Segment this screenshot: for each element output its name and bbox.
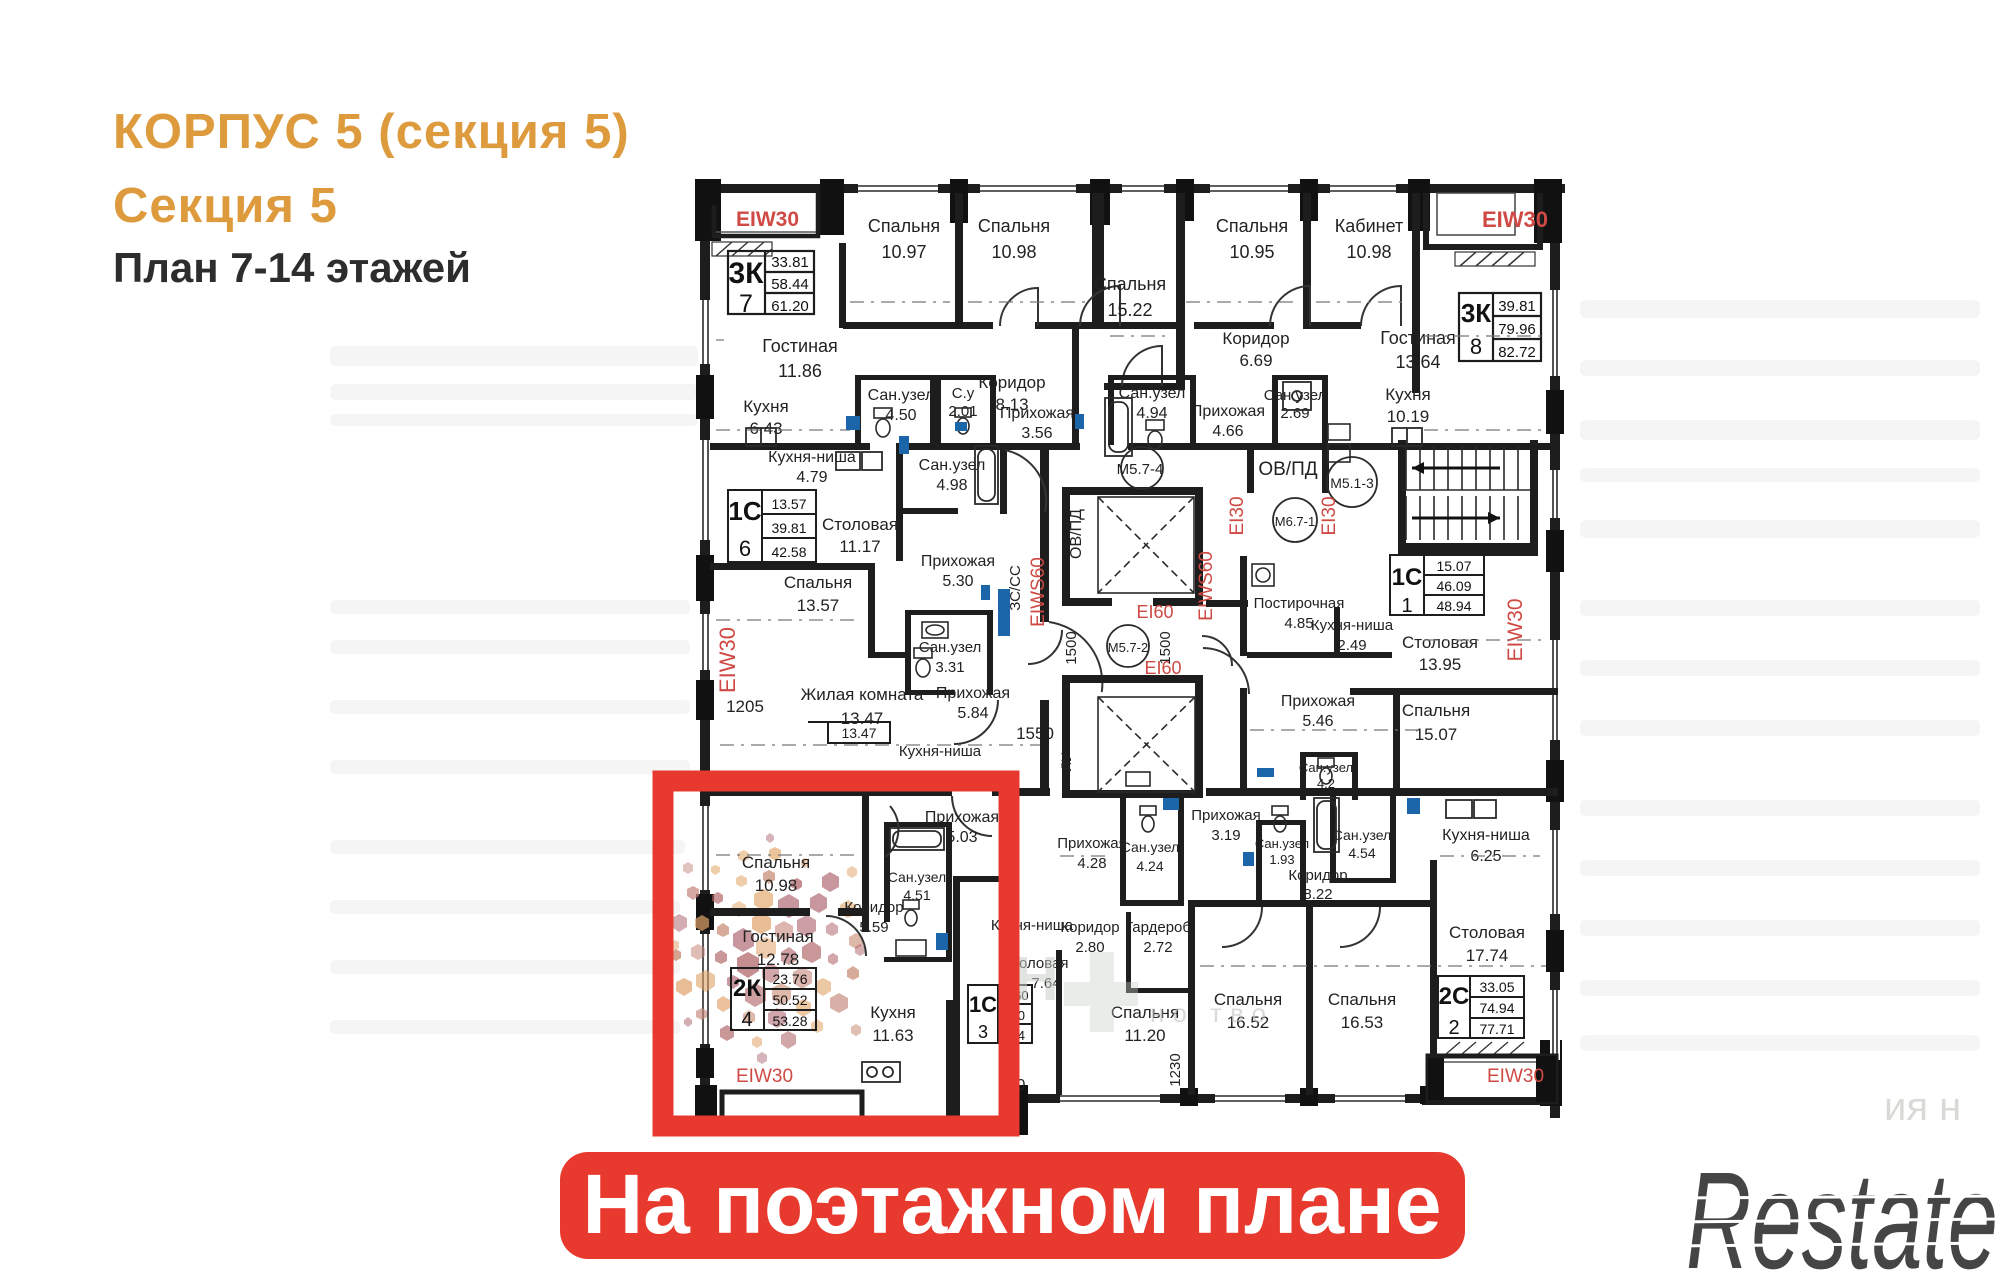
svg-text:48.94: 48.94 bbox=[1436, 598, 1471, 614]
svg-text:1С: 1С bbox=[969, 992, 997, 1017]
svg-text:10.95: 10.95 bbox=[1229, 242, 1274, 262]
svg-text:8: 8 bbox=[1470, 334, 1482, 359]
svg-text:Спальня: Спальня bbox=[1094, 274, 1166, 294]
svg-text:6: 6 bbox=[739, 536, 751, 561]
svg-text:3.19: 3.19 bbox=[1211, 827, 1240, 844]
svg-text:1С: 1С bbox=[1392, 564, 1423, 591]
svg-text:Столовая: Столовая bbox=[1449, 923, 1525, 942]
svg-text:1500: 1500 bbox=[1063, 631, 1080, 664]
svg-text:EIW30: EIW30 bbox=[1487, 1066, 1544, 1087]
svg-text:Прихожая: Прихожая bbox=[1000, 405, 1074, 422]
svg-text:EIWS60: EIWS60 bbox=[1196, 551, 1217, 621]
svg-text:6.69: 6.69 bbox=[1239, 351, 1272, 370]
svg-text:Сан.узел: Сан.узел bbox=[1333, 827, 1391, 843]
svg-text:77.71: 77.71 bbox=[1479, 1021, 1514, 1037]
svg-text:Прихожая: Прихожая bbox=[936, 685, 1010, 702]
svg-text:4.79: 4.79 bbox=[796, 469, 827, 486]
svg-text:Спальня: Спальня bbox=[1216, 216, 1288, 236]
svg-text:1230: 1230 bbox=[1167, 1053, 1184, 1086]
svg-text:Спальня: Спальня bbox=[742, 853, 810, 872]
svg-text:М5.7-4: М5.7-4 bbox=[1117, 461, 1164, 478]
svg-text:5.30: 5.30 bbox=[942, 573, 973, 590]
svg-text:7: 7 bbox=[739, 290, 753, 318]
svg-text:3.31: 3.31 bbox=[935, 659, 964, 676]
svg-text:Секция 5: Секция 5 bbox=[113, 179, 338, 233]
svg-text:46.09: 46.09 bbox=[1436, 578, 1471, 594]
svg-text:2.72: 2.72 bbox=[1143, 939, 1172, 956]
svg-text:Сан.узел: Сан.узел bbox=[1119, 385, 1186, 402]
svg-text:Спальня: Спальня bbox=[978, 216, 1050, 236]
svg-text:ОВ/ПД: ОВ/ПД bbox=[1258, 459, 1317, 480]
svg-text:Кухня: Кухня bbox=[1385, 385, 1431, 404]
svg-text:13.57: 13.57 bbox=[797, 596, 840, 615]
svg-text:10.97: 10.97 bbox=[881, 242, 926, 262]
svg-text:ЛУ: ЛУ bbox=[1058, 753, 1074, 771]
svg-text:5.46: 5.46 bbox=[1302, 713, 1333, 730]
svg-text:EIW30: EIW30 bbox=[736, 1066, 793, 1087]
svg-text:1: 1 bbox=[1401, 595, 1412, 617]
svg-text:Спальня: Спальня bbox=[1328, 990, 1396, 1009]
svg-text:1С: 1С bbox=[728, 496, 761, 526]
svg-text:Гостиная: Гостиная bbox=[762, 336, 838, 356]
svg-text:4.98: 4.98 bbox=[936, 477, 967, 494]
svg-text:План 7-14 этажей: План 7-14 этажей bbox=[113, 244, 471, 291]
svg-text:Кухня-ниша: Кухня-ниша bbox=[1442, 827, 1530, 844]
svg-text:2: 2 bbox=[1448, 1017, 1459, 1039]
svg-text:Кухня: Кухня bbox=[743, 397, 789, 416]
svg-text:4.50: 4.50 bbox=[885, 407, 916, 424]
svg-text:EIW30: EIW30 bbox=[1504, 598, 1527, 661]
svg-text:33.81: 33.81 bbox=[771, 254, 809, 271]
svg-text:Спальня: Спальня bbox=[1402, 701, 1470, 720]
svg-text:3.56: 3.56 bbox=[1021, 425, 1052, 442]
svg-text:На поэтажном плане: На поэтажном плане bbox=[582, 1157, 1441, 1251]
svg-text:11.20: 11.20 bbox=[1124, 1026, 1165, 1045]
svg-text:39.81: 39.81 bbox=[771, 520, 806, 536]
svg-text:EIWS60: EIWS60 bbox=[1028, 557, 1049, 627]
svg-text:1.93: 1.93 bbox=[1269, 852, 1294, 867]
svg-text:ЕІ30: ЕІ30 bbox=[1319, 496, 1340, 535]
svg-text:15.22: 15.22 bbox=[1107, 300, 1152, 320]
svg-text:Restate: Restate bbox=[1686, 1144, 1998, 1275]
svg-text:Жилая комната: Жилая комната bbox=[801, 685, 924, 704]
svg-text:Кухня: Кухня bbox=[870, 1003, 916, 1022]
svg-text:1500: 1500 bbox=[1157, 631, 1174, 664]
svg-text:Спальня: Спальня bbox=[784, 573, 852, 592]
svg-text:Столовая: Столовая bbox=[822, 515, 898, 534]
svg-text:Кухня-ниша: Кухня-ниша bbox=[1311, 617, 1394, 634]
svg-text:ЕІ30: ЕІ30 bbox=[1227, 496, 1248, 535]
svg-text:Гостиная: Гостиная bbox=[1380, 328, 1456, 348]
svg-text:2.69: 2.69 bbox=[1280, 405, 1309, 422]
svg-text:КОРПУС 5 (секция 5): КОРПУС 5 (секция 5) bbox=[113, 105, 630, 159]
svg-text:4: 4 bbox=[741, 1009, 752, 1031]
svg-text:74.94: 74.94 bbox=[1479, 1000, 1514, 1016]
svg-text:Прихожая: Прихожая bbox=[921, 553, 995, 570]
svg-text:16.53: 16.53 bbox=[1341, 1013, 1384, 1032]
svg-text:4.66: 4.66 bbox=[1212, 423, 1243, 440]
svg-text:61.20: 61.20 bbox=[771, 298, 809, 315]
svg-text:4.24: 4.24 bbox=[1136, 858, 1163, 874]
svg-text:Постирочная: Постирочная bbox=[1254, 595, 1345, 612]
svg-text:5.03: 5.03 bbox=[946, 829, 977, 846]
svg-text:Сан.узел: Сан.узел bbox=[1255, 836, 1309, 851]
svg-text:13.95: 13.95 bbox=[1419, 655, 1462, 674]
svg-text:3К: 3К bbox=[729, 257, 765, 290]
svg-text:но тво: но тво bbox=[1150, 998, 1274, 1028]
svg-text:Гостиная: Гостиная bbox=[742, 927, 813, 946]
svg-text:23.76: 23.76 bbox=[772, 971, 807, 987]
svg-text:М5.7-2: М5.7-2 bbox=[1108, 640, 1148, 655]
svg-text:Сан.узел: Сан.узел bbox=[1121, 839, 1179, 855]
svg-text:Прихожая: Прихожая bbox=[1191, 403, 1265, 420]
svg-text:2.49: 2.49 bbox=[1337, 637, 1366, 654]
svg-text:Спальня: Спальня bbox=[868, 216, 940, 236]
svg-text:Н: Н bbox=[1014, 945, 1059, 1014]
svg-text:4.85: 4.85 bbox=[1284, 615, 1313, 632]
svg-text:Прихожая: Прихожая bbox=[1057, 835, 1127, 852]
svg-text:С.у: С.у bbox=[952, 385, 975, 402]
svg-text:1205: 1205 bbox=[726, 697, 764, 716]
svg-text:Коридор: Коридор bbox=[1288, 867, 1347, 884]
svg-text:82.72: 82.72 bbox=[1498, 344, 1536, 361]
svg-text:11.17: 11.17 bbox=[839, 537, 880, 556]
svg-text:Сан.узел: Сан.узел bbox=[868, 387, 935, 404]
svg-text:42.58: 42.58 bbox=[771, 544, 806, 560]
svg-text:Сан.узел: Сан.узел bbox=[888, 869, 946, 885]
svg-text:15.07: 15.07 bbox=[1415, 725, 1458, 744]
svg-text:М5.1-3: М5.1-3 bbox=[1330, 475, 1374, 491]
svg-text:5.84: 5.84 bbox=[957, 705, 988, 722]
svg-text:33.05: 33.05 bbox=[1479, 979, 1514, 995]
svg-text:10.98: 10.98 bbox=[991, 242, 1036, 262]
svg-text:2К: 2К bbox=[733, 975, 761, 1002]
svg-text:EIW30: EIW30 bbox=[1482, 207, 1548, 232]
svg-text:58.44: 58.44 bbox=[771, 276, 809, 293]
svg-text:Кабинет: Кабинет bbox=[1335, 216, 1403, 236]
svg-text:EIW30: EIW30 bbox=[736, 208, 799, 231]
svg-text:13.64: 13.64 bbox=[1395, 352, 1440, 372]
svg-text:3К: 3К bbox=[1461, 298, 1491, 328]
svg-text:2С: 2С bbox=[1439, 983, 1470, 1010]
svg-text:15.07: 15.07 bbox=[1436, 558, 1471, 574]
svg-text:11.63: 11.63 bbox=[872, 1026, 913, 1045]
svg-text:Столовая: Столовая bbox=[1402, 633, 1478, 652]
svg-text:ОВ/ПД: ОВ/ПД bbox=[1068, 509, 1085, 559]
svg-text:17.74: 17.74 bbox=[1466, 946, 1509, 965]
svg-text:4.54: 4.54 bbox=[1348, 845, 1375, 861]
svg-text:4.28: 4.28 bbox=[1077, 855, 1106, 872]
svg-text:Прихожая: Прихожая bbox=[1281, 693, 1355, 710]
svg-text:Прихожая: Прихожая bbox=[925, 809, 999, 826]
svg-text:13.57: 13.57 bbox=[771, 496, 806, 512]
svg-text:Прихожая: Прихожая bbox=[1191, 807, 1261, 824]
svg-text:Гардероб: Гардероб bbox=[1125, 919, 1191, 936]
svg-text:13.47: 13.47 bbox=[841, 725, 876, 741]
svg-text:39.81: 39.81 bbox=[1498, 298, 1536, 315]
svg-text:Коридор: Коридор bbox=[1222, 329, 1289, 348]
svg-text:53.28: 53.28 bbox=[772, 1013, 807, 1029]
svg-text:10.98: 10.98 bbox=[1346, 242, 1391, 262]
svg-text:Коридор: Коридор bbox=[844, 899, 903, 916]
svg-text:10.98: 10.98 bbox=[755, 876, 798, 895]
svg-text:EIW30: EIW30 bbox=[715, 627, 740, 693]
svg-text:Коридор: Коридор bbox=[1060, 919, 1119, 936]
svg-text:50.52: 50.52 bbox=[772, 992, 807, 1008]
svg-text:ЕІ60: ЕІ60 bbox=[1136, 602, 1173, 622]
svg-text:М6.7-1: М6.7-1 bbox=[1275, 514, 1315, 529]
svg-text:11.86: 11.86 bbox=[778, 361, 822, 381]
svg-text:10.19: 10.19 bbox=[1387, 407, 1430, 426]
svg-text:ия н: ия н bbox=[1884, 1085, 1961, 1129]
svg-text:12.78: 12.78 bbox=[757, 950, 800, 969]
svg-text:3: 3 bbox=[978, 1022, 988, 1042]
